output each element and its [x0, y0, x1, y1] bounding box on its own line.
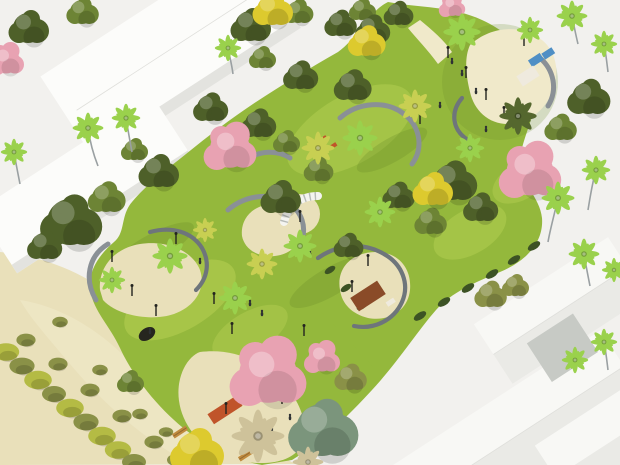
beige-fan-palm: [232, 410, 285, 463]
dark-fan-palm: [499, 97, 536, 134]
rendering-canvas: [0, 0, 620, 465]
park-aerial-rendering: [0, 0, 620, 465]
